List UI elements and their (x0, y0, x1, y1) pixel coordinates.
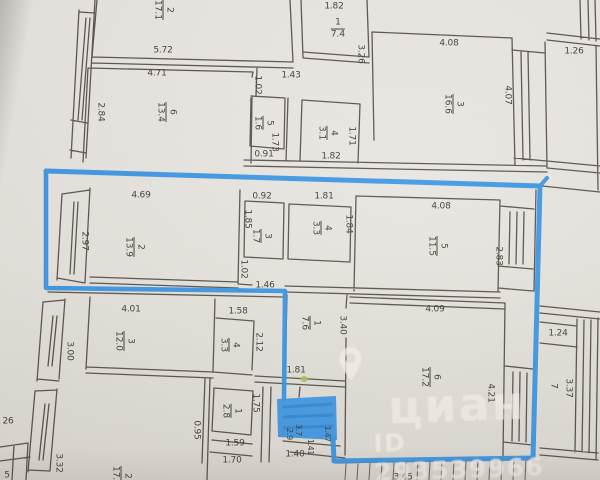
dim-label: 2.12 (254, 332, 263, 351)
room-number: 4 (323, 225, 332, 231)
dim-label: 0.91 (254, 151, 273, 160)
room-number: 5 (265, 120, 274, 126)
dim-label: 1.81 (286, 367, 305, 376)
dim-label: 2.9 (285, 428, 293, 440)
dim-label: 3.40 (338, 315, 347, 334)
dim-label: 1.81 (314, 193, 333, 202)
dim-label: 1.26 (564, 48, 583, 57)
room-number: 2 (136, 244, 145, 250)
room-number: 4 (231, 342, 240, 348)
room-number: 2 (165, 7, 174, 13)
room-area: 12.0 (114, 331, 123, 351)
room-area: 16.6 (443, 94, 452, 114)
room-label-4-3.3: 43.3 (311, 221, 332, 235)
room-number: 2 (123, 473, 132, 479)
room-number: 3 (263, 233, 272, 239)
fraction-bar (261, 229, 262, 243)
floor-plan-photo: 5.724.712.841.021.431.730.911.823.261.71… (0, 0, 600, 480)
dim-label: 4.21 (486, 383, 495, 402)
room-label-1-7.4: 17.4 (331, 19, 345, 40)
dim-label: 0.95 (192, 420, 201, 439)
room-label-6-17.2: 617.2 (420, 367, 441, 387)
room-number: 3 (455, 101, 464, 107)
dim-label: 3.37 (564, 378, 573, 397)
dim-label: 3.26 (356, 44, 365, 63)
room-area: 17.5 (111, 466, 120, 480)
dim-label: 4.09 (425, 306, 444, 315)
dim-label: 2.84 (96, 102, 105, 121)
fraction-bar (327, 126, 328, 140)
dim-label: 1.24 (548, 330, 567, 339)
dim-label: 3.32 (54, 453, 63, 472)
room-area: 17.2 (420, 367, 429, 387)
room-label-5-1.6: 51.6 (253, 116, 274, 130)
room-label-3-16.6: 316.6 (443, 94, 464, 114)
dim-label: 1.82 (321, 153, 340, 162)
fraction-bar (166, 102, 167, 122)
dim-label: 5.72 (153, 47, 172, 56)
dim-label: 3.45 (393, 474, 412, 480)
fraction-bar (121, 466, 122, 480)
fraction-bar (310, 316, 311, 330)
dim-label: 1.84 (344, 214, 353, 233)
dim-label: 1.71 (347, 126, 356, 145)
dim-label: 1.70 (222, 457, 241, 466)
dim-label: 4.71 (147, 70, 166, 79)
dim-label: 1.75 (251, 393, 260, 412)
dim-label: 1.82 (324, 3, 343, 12)
room-label-1-2.8: 12.8 (221, 404, 242, 418)
labels-layer: 5.724.712.841.021.431.730.911.823.261.71… (0, 0, 600, 480)
room-number: 1 (233, 408, 242, 414)
room-area: 3.1 (317, 126, 326, 140)
dim-label: 26 (2, 418, 13, 427)
room-number: 5 (439, 243, 448, 249)
room-number: 3 (126, 338, 135, 344)
fraction-bar (231, 404, 232, 418)
room-area: 13.9 (124, 237, 133, 257)
dim-label: 2.83 (494, 246, 503, 265)
room-number: 1 (312, 320, 321, 326)
room-area: 11.5 (427, 236, 436, 256)
dim-label: 1.40 (285, 451, 304, 460)
dim-label: 1.02 (239, 259, 248, 278)
room-area: 3.3 (219, 338, 228, 352)
fraction-bar (437, 236, 438, 256)
room-area: 13.4 (156, 102, 165, 122)
room-label-3-12.0: 312.0 (114, 331, 135, 351)
room-label-1-7.6: 17.6 (300, 316, 321, 330)
dim-label: 1.47 (323, 426, 331, 442)
room-area: 7.4 (331, 31, 345, 40)
dim-label: 1.59 (225, 440, 244, 449)
room-number: 1 (335, 19, 341, 28)
room-area: 3.3 (311, 221, 320, 235)
fraction-bar (229, 338, 230, 352)
dim-label: 3.00 (65, 341, 74, 360)
room-label-4-3.1: 43.1 (317, 126, 338, 140)
dim-label: 1.46 (255, 282, 274, 291)
dim-label: 4.01 (121, 306, 140, 315)
room-number: 6 (432, 374, 441, 380)
dim-label: 2.97 (80, 231, 89, 250)
room-label-4-3.3: 43.3 (219, 338, 240, 352)
fraction-bar (263, 116, 264, 130)
room-label-5-11.5: 511.5 (427, 236, 448, 256)
fraction-bar (321, 221, 322, 235)
fraction-bar (124, 331, 125, 351)
room-area: 1.7 (251, 229, 260, 243)
dim-label: 1.43 (281, 72, 300, 81)
dim-label: 1.58 (228, 308, 247, 317)
dim-label: 5 (4, 472, 10, 480)
fraction-bar (134, 237, 135, 257)
room-label-6-13.4: 613.4 (156, 102, 177, 122)
room-label-3-1.7: 31.7 (251, 229, 272, 243)
room-area: 17.1 (153, 0, 162, 20)
dim-label: 4.07 (503, 85, 512, 104)
dim-label: 4.08 (431, 203, 450, 212)
fraction-bar (453, 94, 454, 114)
room-number: 4 (329, 130, 338, 136)
dim-label: 4.69 (131, 192, 150, 201)
room-label-2-13.9: 213.9 (124, 237, 145, 257)
dim-label: 4.08 (439, 40, 458, 49)
room-label-7: 7 (549, 383, 558, 389)
room-area: 1.6 (253, 116, 262, 130)
dim-label: 1.41 (306, 439, 314, 455)
room-area: 7.6 (300, 316, 309, 330)
room-label-2-17.5: 217.5 (111, 466, 132, 480)
room-number: 7 (549, 383, 558, 389)
fraction-bar (163, 0, 164, 20)
dim-label: 1.02 (253, 75, 262, 94)
fraction-bar (430, 367, 431, 387)
room-label-2-17.1: 217.1 (153, 0, 174, 20)
room-number: 6 (168, 109, 177, 115)
dim-label: 3.7 (294, 424, 302, 436)
dim-label: 1.85 (243, 209, 252, 228)
room-area: 2.8 (221, 404, 230, 418)
dim-label: 0.92 (252, 193, 271, 202)
